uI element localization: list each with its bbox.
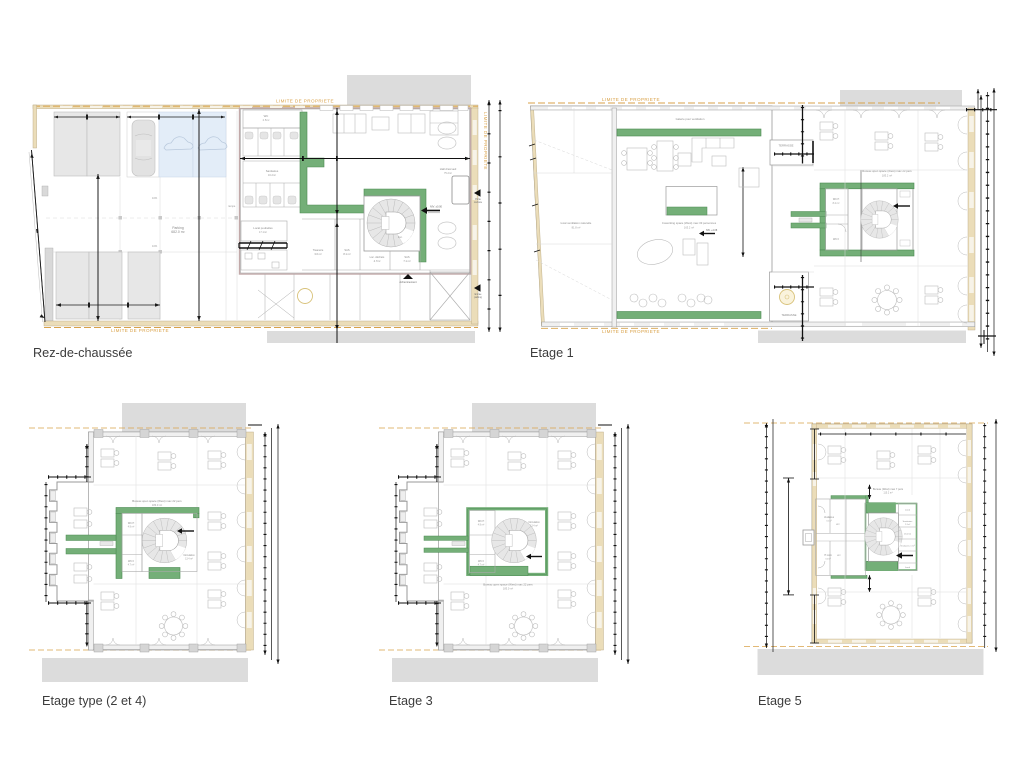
svg-text:4.7 m²: 4.7 m² — [128, 564, 135, 567]
svg-text:13.4 m²: 13.4 m² — [185, 558, 193, 561]
svg-text:2.2m²: 2.2m² — [905, 523, 911, 526]
svg-text:parking: parking — [474, 296, 482, 299]
svg-text:Bureau open space (West) max 2: Bureau open space (West) max 22 pers — [483, 583, 533, 587]
svg-text:8.1 m²: 8.1 m² — [343, 252, 350, 256]
svg-text:WC F: WC F — [478, 560, 485, 563]
svg-text:cochère: cochère — [474, 201, 483, 204]
svg-text:WC: WC — [836, 524, 840, 526]
svg-text:Entrée: Entrée — [475, 293, 482, 296]
svg-text:réserve: réserve — [904, 533, 912, 536]
svg-text:WC H: WC H — [478, 520, 485, 523]
svg-text:LIMITE DE PROPRIETE: LIMITE DE PROPRIETE — [276, 99, 334, 104]
svg-text:75.2m²: 75.2m² — [444, 171, 452, 175]
svg-text:Galerie pour ventilation: Galerie pour ventilation — [676, 117, 705, 121]
svg-text:LIMITE DE PROPRIETE: LIMITE DE PROPRIETE — [602, 329, 660, 334]
svg-text:Bureau open space (West) max 2: Bureau open space (West) max 23 pers — [862, 169, 912, 173]
svg-text:Rez-de-chaussée: Rez-de-chaussée — [33, 346, 132, 360]
svg-text:10%: 10% — [152, 196, 158, 200]
svg-text:Etage 3: Etage 3 — [389, 694, 433, 708]
svg-text:7.1 m²: 7.1 m² — [403, 259, 410, 263]
svg-text:LIMITE DE PROPRIETE: LIMITE DE PROPRIETE — [483, 112, 488, 170]
svg-text:TERRASSE: TERRASSE — [778, 144, 793, 148]
svg-text:local ventilation naturelle: local ventilation naturelle — [561, 221, 592, 225]
svg-text:4.9 m²: 4.9 m² — [478, 524, 485, 527]
svg-text:Vestiaires: Vestiaires — [824, 516, 835, 519]
svg-text:3.2m²: 3.2m² — [825, 558, 831, 561]
svg-text:LIMITE DE PROPRIETE: LIMITE DE PROPRIETE — [602, 97, 660, 102]
svg-text:3.6 m²: 3.6 m² — [314, 252, 321, 256]
svg-text:682.0 m²: 682.0 m² — [171, 230, 185, 234]
svg-text:4.7 m²: 4.7 m² — [478, 564, 485, 567]
svg-text:2.5m²: 2.5m² — [263, 118, 270, 122]
svg-text:115.2 m²: 115.2 m² — [883, 492, 892, 495]
svg-text:Tisanerie: Tisanerie — [313, 248, 324, 252]
svg-text:Sanitaires: Sanitaires — [266, 169, 279, 173]
svg-text:4.7m²: 4.7m² — [374, 259, 381, 263]
svg-text:81.8 m²: 81.8 m² — [572, 226, 581, 230]
svg-text:Circulation: Circulation — [528, 521, 540, 524]
svg-text:10%: 10% — [152, 244, 158, 248]
svg-text:8.2 m²: 8.2 m² — [833, 202, 840, 205]
svg-text:3.1m²: 3.1m² — [826, 520, 832, 523]
svg-text:SAS: SAS — [404, 255, 409, 259]
svg-text:Etage 1: Etage 1 — [530, 346, 574, 360]
svg-text:Esc.: Esc. — [398, 236, 403, 239]
svg-text:183.0 m²: 183.0 m² — [503, 587, 513, 591]
svg-text:Etage 5: Etage 5 — [758, 694, 802, 708]
svg-text:4.9 m²: 4.9 m² — [128, 526, 135, 529]
svg-text:Hall d'accueil: Hall d'accueil — [440, 167, 457, 171]
svg-text:Local: Local — [905, 510, 911, 512]
svg-text:Bureau (West) max 7 pers: Bureau (West) max 7 pers — [873, 487, 904, 491]
svg-text:16.2m²: 16.2m² — [268, 173, 276, 177]
svg-text:WC: WC — [837, 555, 841, 557]
svg-text:Bureau open space (West) max 2: Bureau open space (West) max 22 pers — [132, 499, 182, 503]
svg-text:IT room: IT room — [824, 554, 832, 557]
svg-text:SAS: SAS — [344, 248, 349, 252]
svg-text:163.2 m²: 163.2 m² — [684, 226, 694, 230]
svg-text:Coworking space (West) max 33: Coworking space (West) max 33 personnes — [662, 221, 717, 225]
svg-text:Sanitaires: Sanitaires — [903, 520, 914, 523]
svg-text:Vestiaires 1 m²: Vestiaires 1 m² — [900, 545, 915, 548]
svg-text:rampe: rampe — [228, 204, 236, 208]
svg-text:Local: Local — [905, 567, 911, 569]
svg-text:WC H: WC H — [128, 522, 135, 525]
svg-text:Acheminement: Acheminement — [399, 280, 417, 284]
svg-text:Circulation: Circulation — [183, 554, 195, 557]
svg-text:WC F: WC F — [128, 560, 135, 563]
svg-text:WC: WC — [264, 114, 269, 118]
svg-text:Local poubelles: Local poubelles — [253, 226, 273, 230]
svg-text:Etage type (2 et 4): Etage type (2 et 4) — [42, 694, 146, 708]
svg-text:Loc. déchets: Loc. déchets — [370, 255, 385, 259]
svg-text:17.1m²: 17.1m² — [259, 230, 267, 234]
svg-text:WC H: WC H — [833, 198, 840, 201]
svg-text:NIV. ±0.00: NIV. ±0.00 — [430, 205, 443, 209]
svg-text:183.2 m²: 183.2 m² — [882, 174, 892, 178]
svg-text:LIMITE DE PROPRIETE: LIMITE DE PROPRIETE — [111, 328, 169, 333]
svg-text:183.0 m²: 183.0 m² — [152, 503, 162, 507]
svg-text:WC F: WC F — [833, 238, 840, 241]
svg-text:Porte: Porte — [475, 198, 481, 201]
svg-text:TERRASSE: TERRASSE — [781, 313, 796, 317]
svg-text:NIV. +4.08: NIV. +4.08 — [706, 229, 718, 232]
